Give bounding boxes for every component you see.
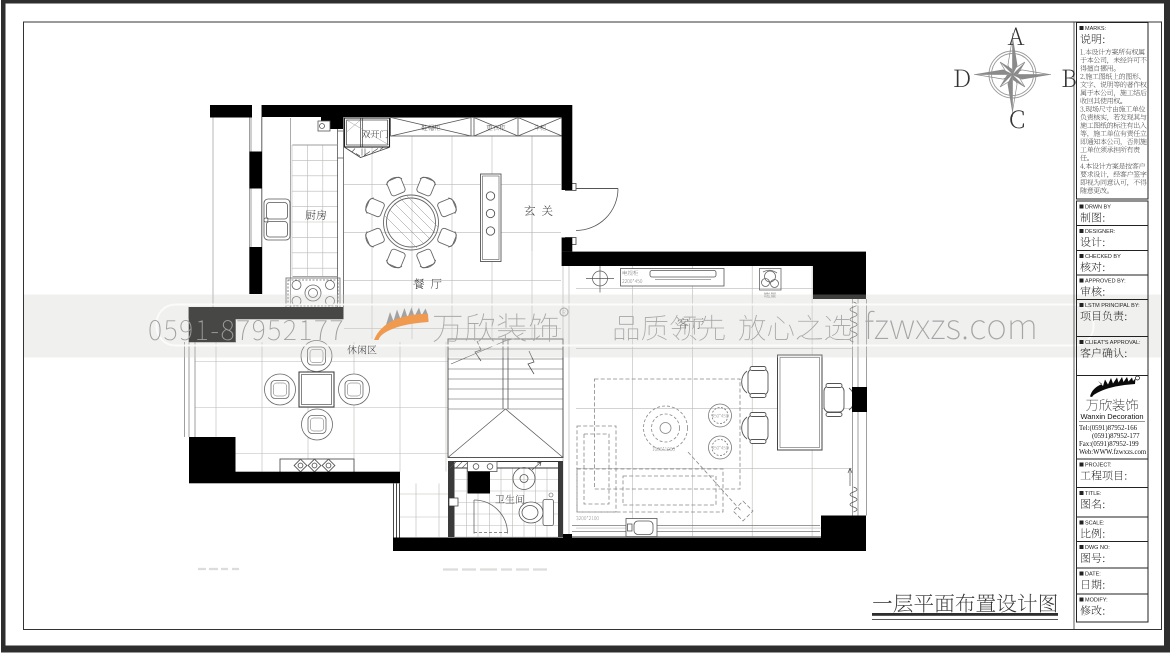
svg-text:MODIFY:: MODIFY: <box>1085 598 1108 604</box>
svg-text:APPROVED BY:: APPROVED BY: <box>1085 279 1126 285</box>
svg-text:Wanxin Decoration: Wanxin Decoration <box>1080 412 1143 421</box>
svg-text:DWG NO:: DWG NO: <box>1085 545 1110 551</box>
svg-text:DESIGNER:: DESIGNER: <box>1085 229 1116 235</box>
svg-text:TITLE:: TITLE: <box>1085 491 1102 497</box>
svg-text:LSTM PRINCIPAL BY:: LSTM PRINCIPAL BY: <box>1085 303 1140 309</box>
svg-text:PROJECT:: PROJECT: <box>1085 463 1112 469</box>
svg-text:(0591)87952-177: (0591)87952-177 <box>1092 433 1140 440</box>
svg-text:MARKS:: MARKS: <box>1085 26 1107 32</box>
svg-text:DRWN BY: DRWN BY <box>1085 205 1111 211</box>
svg-text:Web:WWW.fzwxzs.com: Web:WWW.fzwxzs.com <box>1079 449 1147 456</box>
svg-text:CHECKED BY: CHECKED BY <box>1085 254 1121 260</box>
svg-text:DATE:: DATE: <box>1085 572 1101 578</box>
svg-text:Fax:(0591)87952-199: Fax:(0591)87952-199 <box>1079 441 1139 448</box>
svg-text:SCALE:: SCALE: <box>1085 521 1105 527</box>
svg-text:CLIEAT'S APPROVAL:: CLIEAT'S APPROVAL: <box>1085 340 1141 346</box>
svg-text:Tel:(0591)87952-166: Tel:(0591)87952-166 <box>1079 425 1138 432</box>
